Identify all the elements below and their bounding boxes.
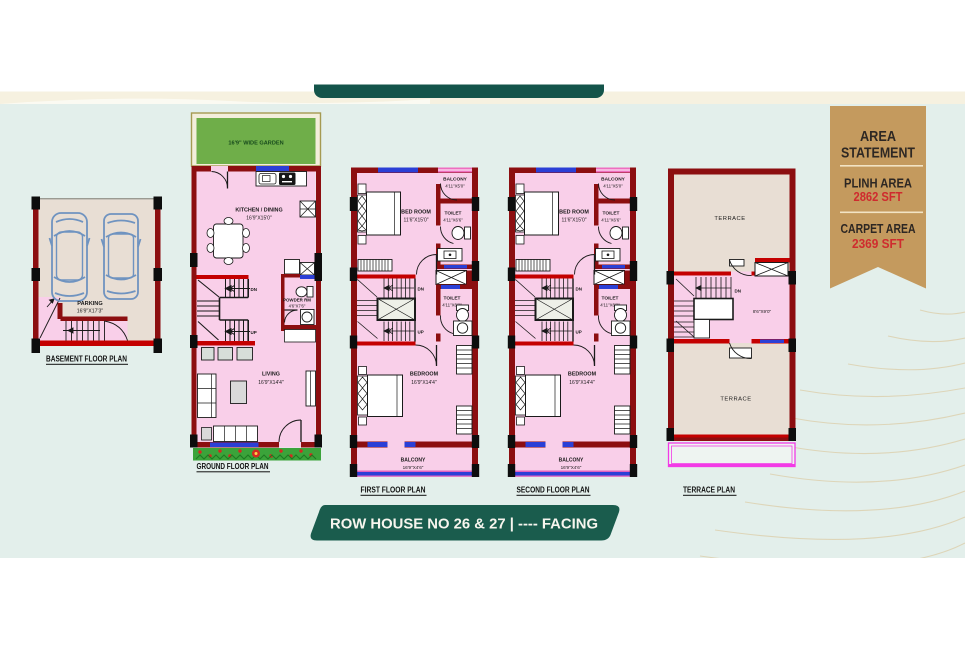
svg-text:4'11"X5'0": 4'11"X5'0" [445, 184, 465, 189]
svg-text:16'9" WIDE GARDEN: 16'9" WIDE GARDEN [228, 141, 283, 147]
svg-text:16'9"X14'4": 16'9"X14'4" [411, 380, 437, 386]
svg-text:AREA: AREA [860, 128, 896, 145]
svg-text:BASEMENT FLOOR PLAN: BASEMENT FLOOR PLAN [46, 355, 127, 364]
svg-text:ROW HOUSE NO 26 & 27 | ---- FA: ROW HOUSE NO 26 & 27 | ---- FACING [330, 516, 598, 533]
svg-text:DN: DN [735, 289, 742, 294]
svg-text:STATEMENT: STATEMENT [841, 145, 915, 162]
svg-text:POWDER RM: POWDER RM [283, 298, 311, 303]
svg-text:DN: DN [251, 287, 258, 292]
svg-text:11'6"X15'0": 11'6"X15'0" [403, 218, 428, 224]
svg-text:KITCHEN / DINING: KITCHEN / DINING [235, 208, 282, 214]
svg-text:PARKING: PARKING [77, 301, 102, 307]
svg-text:FIRST FLOOR PLAN: FIRST FLOOR PLAN [361, 486, 426, 495]
svg-text:8'6"X9'0": 8'6"X9'0" [753, 309, 772, 314]
svg-text:2862 SFT: 2862 SFT [854, 189, 903, 204]
svg-text:DN: DN [418, 287, 425, 292]
svg-text:TERRACE PLAN: TERRACE PLAN [683, 486, 735, 495]
svg-text:TOILET: TOILET [444, 296, 461, 302]
svg-text:CARPET AREA: CARPET AREA [841, 221, 916, 236]
svg-text:UP: UP [251, 330, 257, 335]
svg-text:BALCONY: BALCONY [401, 458, 426, 464]
svg-text:BALCONY: BALCONY [443, 177, 468, 183]
svg-text:2369 SFT: 2369 SFT [852, 236, 904, 251]
svg-text:BED ROOM: BED ROOM [401, 210, 431, 216]
svg-text:4'6"X7'6": 4'6"X7'6" [289, 304, 306, 309]
svg-text:16'9"X4'6": 16'9"X4'6" [403, 465, 424, 470]
svg-text:16'9"X17'3": 16'9"X17'3" [77, 309, 104, 315]
svg-text:SECOND FLOOR PLAN: SECOND FLOOR PLAN [517, 486, 590, 495]
svg-text:16'9"X14'4": 16'9"X14'4" [258, 380, 284, 386]
svg-text:LIVING: LIVING [262, 372, 280, 378]
svg-text:TOILET: TOILET [445, 211, 462, 217]
svg-text:TERRACE: TERRACE [714, 216, 745, 222]
svg-text:UP: UP [418, 330, 424, 335]
svg-text:4'11"X6'6": 4'11"X6'6" [443, 218, 463, 223]
svg-text:TERRACE: TERRACE [720, 397, 751, 403]
svg-text:BEDROOM: BEDROOM [410, 372, 439, 378]
svg-text:16'9"X15'0": 16'9"X15'0" [246, 216, 272, 222]
svg-text:GROUND FLOOR PLAN: GROUND FLOOR PLAN [197, 462, 269, 471]
